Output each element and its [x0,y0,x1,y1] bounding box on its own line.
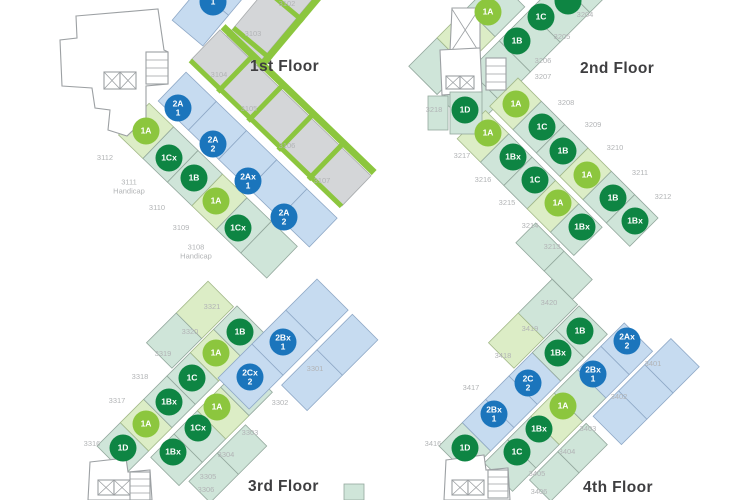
floor-4-plan: 4th Floor 3420 3419 3418 3417 3416 [0,0,750,500]
unit-number: 3420 [541,299,558,308]
unit-number-text: 3405 [529,470,546,479]
unit-number-text: 3404 [559,448,576,457]
unit-number: 3403 [580,425,597,434]
unit-type-badge[interactable]: 2Bx 1 [580,361,607,388]
unit-number: 3404 [559,448,576,457]
unit-type-badge[interactable]: 1Bx [545,340,572,367]
floor-4-label: 4th Floor [583,479,653,497]
unit-type-line1: 1D [460,444,471,453]
unit-type-line2: 1 [591,374,596,383]
unit-number: 3406 [531,488,548,497]
unit-type-line2: 2 [625,341,630,350]
unit-type-line2: 2 [526,383,531,392]
unit-type-badge[interactable]: 2Ax 2 [614,328,641,355]
unit-number-text: 3416 [425,440,442,449]
unit-type-badge[interactable]: 1B [567,318,594,345]
unit-number-text: 3417 [463,384,480,393]
floorplan-sheet: 1st Floor 3102 3103 3104 3105 3106 [0,0,750,500]
unit-number-text: 3401 [645,360,662,369]
unit-type-badge[interactable]: 1A [550,393,577,420]
unit-type-badge[interactable]: 2C 2 [515,370,542,397]
unit-number-text: 3420 [541,299,558,308]
unit-number-text: 3406 [531,488,548,497]
unit-number: 3402 [611,393,628,402]
unit-type-line2: 1 [492,414,497,423]
unit-number: 3419 [522,325,539,334]
unit-type-badge[interactable]: 1D [452,435,479,462]
unit-type-line1: 1A [558,402,569,411]
unit-type-line1: 1Bx [531,425,547,434]
unit-number-text: 3402 [611,393,628,402]
unit-number: 3401 [645,360,662,369]
unit-type-line1: 1C [512,448,523,457]
unit-number: 3418 [495,352,512,361]
unit-type-badge[interactable]: 1Bx [526,416,553,443]
unit-number: 3416 [425,440,442,449]
unit-number: 3417 [463,384,480,393]
unit-type-badge[interactable]: 1C [504,439,531,466]
unit-type-badge[interactable]: 2Bx 1 [481,401,508,428]
unit-number: 3405 [529,470,546,479]
unit-number-text: 3419 [522,325,539,334]
unit-number-text: 3403 [580,425,597,434]
unit-number-text: 3418 [495,352,512,361]
unit-type-line1: 1Bx [550,349,566,358]
unit-type-line1: 1B [575,327,586,336]
